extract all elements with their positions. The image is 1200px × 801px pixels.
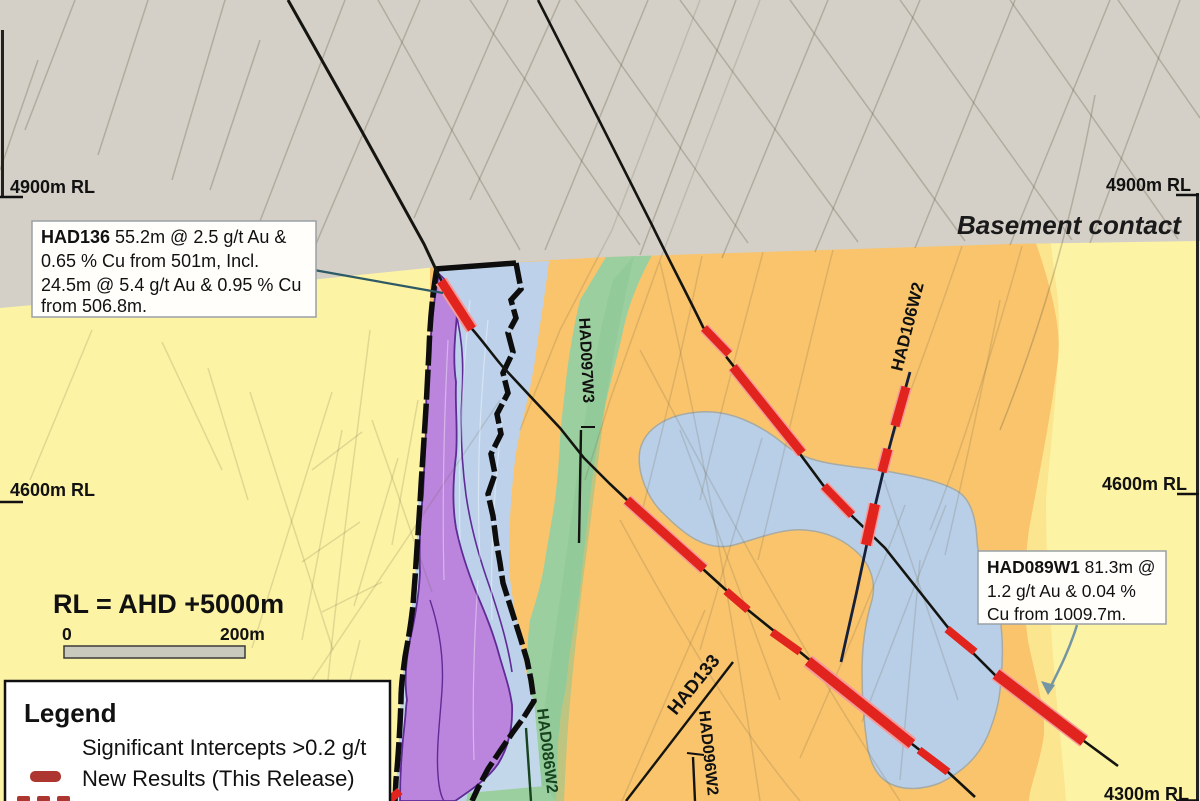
svg-text:Legend: Legend xyxy=(24,698,116,728)
svg-text:Basement contact: Basement contact xyxy=(957,210,1182,240)
svg-text:4600m RL: 4600m RL xyxy=(10,480,95,500)
svg-text:New Results (This Release): New Results (This Release) xyxy=(82,766,355,791)
svg-text:RL = AHD +5000m: RL = AHD +5000m xyxy=(53,589,284,619)
svg-text:0.65 % Cu from 501m, Incl.: 0.65 % Cu from 501m, Incl. xyxy=(41,251,259,271)
svg-text:Significant Intercepts >0.2 g/: Significant Intercepts >0.2 g/t xyxy=(82,735,366,760)
svg-text:200m: 200m xyxy=(220,624,265,644)
svg-text:4600m RL: 4600m RL xyxy=(1102,474,1187,494)
svg-text:4900m RL: 4900m RL xyxy=(1106,175,1191,195)
svg-text:0: 0 xyxy=(62,624,72,644)
svg-text:1.2 g/t Au & 0.04 %: 1.2 g/t Au & 0.04 % xyxy=(987,581,1136,601)
svg-text:Cu from 1009.7m.: Cu from 1009.7m. xyxy=(987,604,1126,624)
svg-text:4300m RL: 4300m RL xyxy=(1104,784,1189,801)
svg-text:4900m RL: 4900m RL xyxy=(10,177,95,197)
svg-text:24.5m @ 5.4 g/t Au & 0.95 % Cu: 24.5m @ 5.4 g/t Au & 0.95 % Cu xyxy=(41,275,301,295)
svg-text:HAD089W1 81.3m @: HAD089W1 81.3m @ xyxy=(987,557,1155,577)
svg-text:HAD136 55.2m @ 2.5 g/t Au &: HAD136 55.2m @ 2.5 g/t Au & xyxy=(41,227,286,247)
svg-text:from 506.8m.: from 506.8m. xyxy=(41,296,147,316)
